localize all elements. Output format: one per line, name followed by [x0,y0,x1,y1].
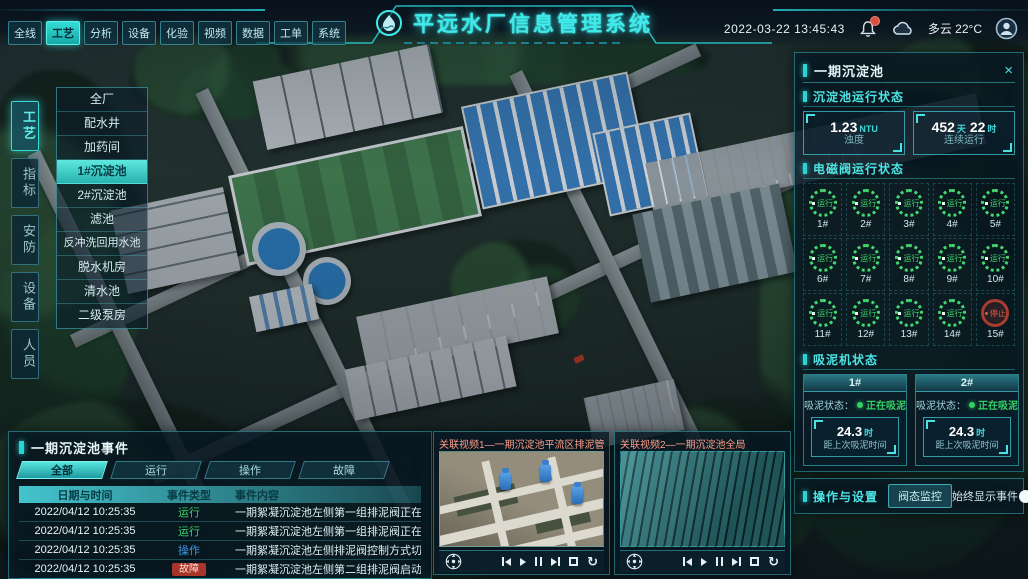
mud-status-value: 正在吸泥 [866,397,906,412]
left-category-tabs: 工艺 指标 安防 设备 人员 [11,101,39,386]
valve-status: 运行 [855,198,876,209]
fullscreen-icon[interactable] [750,557,759,566]
nav-tab-fenxi[interactable]: 分析 [84,21,118,45]
skip-back-icon[interactable] [502,557,511,566]
mud-machine-id: 2# [916,375,1018,392]
event-tab-all[interactable]: 全部 [16,461,108,479]
valve-status: 停止 [985,308,1006,319]
process-submenu: 全厂 配水井 加药间 1#沉淀池 2#沉淀池 滤池 反冲洗回用水池 脱水机房 清… [56,87,148,329]
submenu-item-2-chendianchi[interactable]: 2#沉淀池 [57,184,147,208]
valve-status: 运行 [812,198,833,209]
valve-status: 运行 [812,253,833,264]
section-mud-suction-header: 吸泥机状态 [803,352,1015,370]
valve-indicator-8[interactable]: 运行8# [889,238,928,291]
event-datetime: 2022/04/12 10:25:35 [19,525,151,537]
valve-indicator-10[interactable]: 运行10# [976,238,1015,291]
app-root: 全线 工艺 分析 设备 化验 视频 数据 工单 系统 平远水厂信息管理系统 20… [0,0,1028,579]
valve-ring: 停止 [981,299,1009,327]
event-tab-run[interactable]: 运行 [110,461,202,479]
valve-status: 运行 [942,198,963,209]
operations-title: 操作与设置 [803,488,878,505]
mud-machine-1: 1# 吸泥状态： 正在吸泥 24.3时 距上次吸泥时间 [803,374,907,466]
events-panel-title: 一期沉淀池事件 [19,438,421,456]
skip-forward-icon[interactable] [551,557,560,566]
pause-icon[interactable] [716,557,723,566]
mud-suction-cards: 1# 吸泥状态： 正在吸泥 24.3时 距上次吸泥时间 2# 吸泥状态： 正在吸… [803,374,1015,466]
skip-back-icon[interactable] [683,557,692,566]
nav-tab-shuju[interactable]: 数据 [236,21,270,45]
valve-ring: 运行 [938,244,966,272]
weather-text: 多云 22°C [928,20,982,37]
notification-bell-icon[interactable] [858,19,878,39]
pause-icon[interactable] [535,557,542,566]
ptz-control-icon[interactable] [626,553,643,570]
ptz-control-icon[interactable] [445,553,462,570]
decor-line-left [0,9,265,11]
valve-id: 10# [987,275,1004,285]
section-valves-header: 电磁阀运行状态 [803,161,1015,179]
valve-id: 3# [903,220,914,230]
valve-status: 运行 [942,308,963,319]
video-1-controls [439,550,604,572]
event-type-badge: 运行 [151,504,227,520]
valve-indicator-3[interactable]: 运行3# [889,183,928,236]
runtime-label: 连续运行 [944,136,984,146]
mud-status-label: 吸泥状态： [804,397,854,412]
left-tab-renyuan[interactable]: 人员 [11,329,39,379]
runtime-days: 452 [932,119,955,135]
mud-time-box: 24.3时 距上次吸泥时间 [811,417,899,457]
submenu-item-lvchi[interactable]: 滤池 [57,208,147,232]
mud-status-label: 吸泥状态： [916,397,966,412]
valve-ring: 运行 [895,189,923,217]
valve-indicator-1[interactable]: 运行1# [803,183,842,236]
col-datetime: 日期与时间 [19,487,151,503]
video-2-title: 关联视频2—一期沉淀池全局 [620,436,785,450]
section-run-status-header: 沉淀池运行状态 [803,89,1015,107]
event-content: 一期絮凝沉淀池左侧第二组排泥阀启动失败 [227,561,421,577]
video-1-stream[interactable] [439,451,604,547]
valve-status: 运行 [942,253,963,264]
runtime-hours: 22 [970,119,986,135]
valve-indicator-13[interactable]: 运行13# [889,293,928,346]
left-tab-zhibiao[interactable]: 指标 [11,158,39,208]
event-content: 一期絮凝沉淀池左侧第一组排泥阀正在排泥 [227,504,421,520]
submenu-item-erjibengfang[interactable]: 二级泵房 [57,304,147,328]
mud-hours-label: 距上次吸泥时间 [823,441,886,450]
valve-id: 15# [987,330,1004,340]
valve-id: 5# [990,220,1001,230]
valve-id: 1# [817,220,828,230]
video-2-stream[interactable] [620,451,785,547]
submenu-item-peishuijing[interactable]: 配水井 [57,112,147,136]
mud-hours-value: 24.3 [949,424,974,439]
weather-cloud-icon [891,20,915,38]
submenu-item-1-chendianchi[interactable]: 1#沉淀池 [57,160,147,184]
status-dot-icon [857,402,863,408]
nav-tab-shebei[interactable]: 设备 [122,21,156,45]
nav-tab-xitong[interactable]: 系统 [312,21,346,45]
sedimentation-detail-panel: 一期沉淀池 × 沉淀池运行状态 1.23NTU 浊度 452天 22时 连续运行… [794,52,1024,472]
top-nav-tabs: 全线 工艺 分析 设备 化验 视频 数据 工单 系统 [8,21,346,45]
top-right-status: 2022-03-22 13:45:43 多云 22°C [724,17,1018,40]
submenu-item-fanchongxi[interactable]: 反冲洗回用水池 [57,232,147,256]
valve-ring: 运行 [981,244,1009,272]
valve-id: 8# [903,275,914,285]
event-row[interactable]: 2022/04/12 10:25:35 运行 一期絮凝沉淀池左侧第一组排泥阀正在… [19,503,421,522]
valve-id: 4# [947,220,958,230]
event-table-header: 日期与时间 事件类型 事件内容 [19,486,421,503]
app-title-block: 平远水厂信息管理系统 [375,8,653,38]
col-type: 事件类型 [151,487,227,503]
pump [572,486,583,504]
valve-ring: 运行 [852,299,880,327]
event-row[interactable]: 2022/04/12 10:25:35 运行 一期絮凝沉淀池左侧第一组排泥阀正在… [19,522,421,541]
mud-machine-2: 2# 吸泥状态： 正在吸泥 24.3时 距上次吸泥时间 [915,374,1019,466]
turbidity-label: 浊度 [844,136,864,146]
valve-id: 13# [901,330,918,340]
valve-id: 14# [944,330,961,340]
left-tab-anfang[interactable]: 安防 [11,215,39,265]
app-logo-icon [375,9,403,37]
nav-tab-gongyi[interactable]: 工艺 [46,21,80,45]
event-content: 一期絮凝沉淀池左侧第一组排泥阀正在排泥 [227,523,421,539]
valve-ring: 运行 [809,299,837,327]
valve-indicator-11[interactable]: 运行11# [803,293,842,346]
valve-id: 7# [860,275,871,285]
event-type-badge: 故障 [151,563,227,576]
pump [540,464,551,482]
valve-indicator-14[interactable]: 运行14# [933,293,972,346]
event-tab-operate[interactable]: 操作 [204,461,296,479]
event-datetime: 2022/04/12 10:25:35 [19,506,151,518]
video-panel-1: 关联视频1—一期沉淀池平流区排泥管廊 [433,431,610,575]
valve-ring: 运行 [852,189,880,217]
panel-header: 一期沉淀池 × [803,59,1015,83]
mud-hours-value: 24.3 [837,424,862,439]
valve-id: 11# [815,330,831,340]
event-type-badge: 运行 [151,523,227,539]
nav-tab-quanxian[interactable]: 全线 [8,21,42,45]
video-panel-2: 关联视频2—一期沉淀池全局 [614,431,791,575]
loop-icon[interactable] [768,555,779,568]
event-tab-fault[interactable]: 故障 [298,461,390,479]
nav-tab-huayan[interactable]: 化验 [160,21,194,45]
col-content: 事件内容 [227,487,421,503]
valve-ring: 运行 [938,189,966,217]
turbidity-unit: NTU [859,124,878,134]
valve-status: 运行 [898,308,919,319]
alert-badge [870,16,880,26]
valve-ring: 运行 [981,189,1009,217]
valve-ring: 运行 [809,189,837,217]
status-dot-icon [969,402,975,408]
valve-status: 运行 [898,198,919,209]
mud-machine-id: 1# [804,375,906,392]
submenu-item-qingshuichi[interactable]: 清水池 [57,280,147,304]
valve-id: 2# [860,220,871,230]
event-datetime: 2022/04/12 10:25:35 [19,563,151,575]
event-datetime: 2022/04/12 10:25:35 [19,544,151,556]
nav-tab-gongdan[interactable]: 工单 [274,21,308,45]
valve-monitor-button[interactable]: 阀态监控 [888,484,952,508]
pump [500,472,511,490]
valve-status: 运行 [855,253,876,264]
operations-settings-panel: 操作与设置 阀态监控 始终显示事件： [794,478,1024,514]
valve-status: 运行 [898,253,919,264]
valve-indicator-9[interactable]: 运行9# [933,238,972,291]
valve-ring: 运行 [895,244,923,272]
valve-indicator-12[interactable]: 运行12# [846,293,885,346]
valve-status: 运行 [985,198,1006,209]
user-avatar-icon[interactable] [995,17,1018,40]
turbidity-stat: 1.23NTU 浊度 [803,111,905,155]
play-icon[interactable] [520,558,526,566]
valve-ring: 运行 [895,299,923,327]
close-icon[interactable]: × [1002,63,1015,78]
submenu-item-tuoshuijifang[interactable]: 脱水机房 [57,256,147,280]
valve-status: 运行 [985,253,1006,264]
mud-time-box: 24.3时 距上次吸泥时间 [923,417,1011,457]
valve-status: 运行 [855,308,876,319]
top-bar: 全线 工艺 分析 设备 化验 视频 数据 工单 系统 平远水厂信息管理系统 20… [0,0,1028,46]
always-show-events-label: 始终显示事件： [952,488,1028,504]
runtime-stat: 452天 22时 连续运行 [913,111,1015,155]
play-icon[interactable] [701,558,707,566]
loop-icon[interactable] [587,555,598,568]
valve-indicator-15[interactable]: 停止15# [976,293,1015,346]
valve-indicator-6[interactable]: 运行6# [803,238,842,291]
event-content: 一期絮凝沉淀池左侧排泥阀控制方式切换为手动 [227,542,421,558]
skip-forward-icon[interactable] [732,557,741,566]
run-status-stats: 1.23NTU 浊度 452天 22时 连续运行 [803,111,1015,155]
video-1-title: 关联视频1—一期沉淀池平流区排泥管廊 [439,436,604,450]
fullscreen-icon[interactable] [569,557,578,566]
valve-id: 9# [947,275,958,285]
turbidity-value: 1.23 [830,119,857,135]
panel-title: 一期沉淀池 [814,61,1002,80]
event-filter-tabs: 全部 运行 操作 故障 [19,461,421,479]
datetime-display: 2022-03-22 13:45:43 [724,22,845,36]
left-tab-shebei[interactable]: 设备 [11,272,39,322]
page-title: 平远水厂信息管理系统 [413,8,653,38]
valve-indicator-4[interactable]: 运行4# [933,183,972,236]
event-row[interactable]: 2022/04/12 10:25:35 故障 一期絮凝沉淀池左侧第二组排泥阀启动… [19,560,421,579]
valve-indicator-2[interactable]: 运行2# [846,183,885,236]
valve-indicator-7[interactable]: 运行7# [846,238,885,291]
valve-grid: 运行1# 运行2# 运行3# 运行4# 运行5# 运行6# 运行7# 运行8# … [803,183,1015,346]
left-tab-gongyi[interactable]: 工艺 [11,101,39,151]
valve-ring: 运行 [852,244,880,272]
valve-id: 6# [817,275,828,285]
submenu-item-jiayaojian[interactable]: 加药间 [57,136,147,160]
valve-status: 运行 [812,308,833,319]
events-panel: 一期沉淀池事件 全部 运行 操作 故障 日期与时间 事件类型 事件内容 2022… [8,431,432,579]
submenu-item-quanchang[interactable]: 全厂 [57,88,147,112]
valve-id: 12# [857,330,874,340]
event-row[interactable]: 2022/04/12 10:25:35 操作 一期絮凝沉淀池左侧排泥阀控制方式切… [19,541,421,560]
mud-hours-label: 距上次吸泥时间 [935,441,998,450]
valve-ring: 运行 [809,244,837,272]
video-2-controls [620,550,785,572]
valve-indicator-5[interactable]: 运行5# [976,183,1015,236]
decor-line-right [773,9,1028,11]
nav-tab-shipin[interactable]: 视频 [198,21,232,45]
mud-status-value: 正在吸泥 [978,397,1018,412]
event-type-badge: 操作 [151,542,227,558]
valve-ring: 运行 [938,299,966,327]
